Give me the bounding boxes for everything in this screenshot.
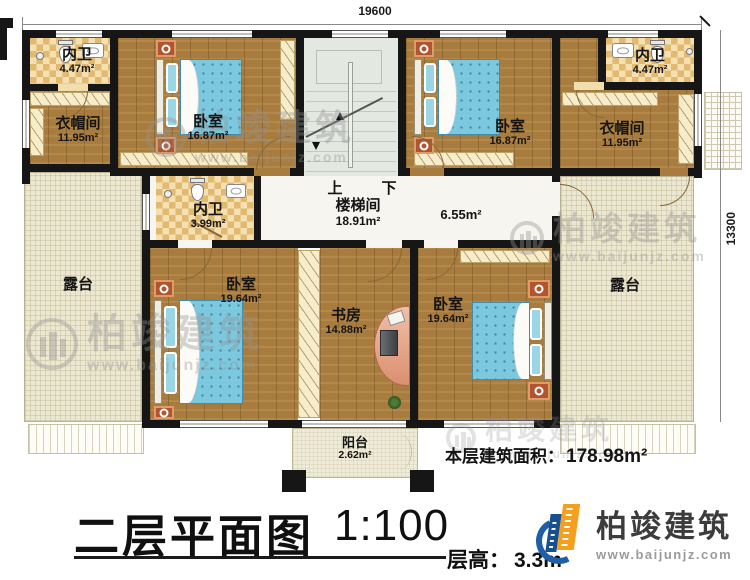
- room-label-bedroom-top-left: 卧室 16.87m²: [176, 113, 240, 143]
- window-left: [22, 100, 30, 148]
- room-area: 16.87m²: [188, 130, 229, 142]
- stair-down-label: 下: [380, 177, 398, 198]
- room-area: 11.95m²: [58, 132, 98, 144]
- nightstand-knob-icon: [160, 284, 169, 293]
- room-name: 阳台: [342, 436, 368, 450]
- bed-blanket: [180, 301, 200, 403]
- wall-closet-tl-bottom: [22, 164, 118, 172]
- room-area: 19.64m²: [221, 293, 262, 305]
- wall-bath-tr-bottom: [598, 82, 702, 90]
- room-label-closet-top-left: 衣帽间 11.95m²: [46, 115, 110, 145]
- toilet-tank-icon: [190, 178, 205, 183]
- brand-url: www.baijunjz.com: [596, 547, 732, 562]
- stair-up-label: 上: [326, 177, 344, 198]
- room-name: 内卫: [193, 202, 223, 219]
- window-top-1: [56, 30, 102, 38]
- room-name: 衣帽间: [599, 121, 644, 138]
- room-label-bedroom-bottom-left: 卧室 19.64m²: [209, 276, 273, 306]
- window-top-stair: [332, 30, 388, 38]
- room-area: 11.95m²: [602, 137, 642, 149]
- bed-mattress: [179, 300, 243, 404]
- title-underline: [74, 556, 446, 559]
- shower-icon: [36, 52, 44, 60]
- nightstand: [528, 382, 550, 400]
- room-area: 2.62m²: [338, 450, 371, 462]
- wardrobe-closet-tr-right: [678, 94, 694, 164]
- bed-mattress: [472, 302, 530, 380]
- room-area: 4.47m²: [60, 63, 95, 75]
- brand-logo-windows-icon: [549, 518, 557, 548]
- wall-stair-right: [398, 30, 406, 176]
- shower-icon: [686, 48, 693, 55]
- room-label-terrace-right: 露台: [597, 277, 653, 295]
- room-name: 卧室: [193, 114, 223, 131]
- sink-basin-icon: [231, 188, 242, 195]
- floor-area-label: 本层建筑面积：: [445, 442, 564, 467]
- stair-arrow-down: [312, 142, 320, 150]
- room-area: 19.64m²: [428, 313, 469, 325]
- bed-pillow: [164, 306, 177, 348]
- room-name: 露台: [610, 278, 640, 295]
- dimension-top-value: 19600: [337, 4, 413, 18]
- wardrobe-closet-tl-left: [30, 108, 44, 156]
- room-label-bath-middle: 内卫 3.99m²: [176, 202, 240, 230]
- wall-bedroom-tr-right: [552, 30, 560, 176]
- nightstand: [156, 137, 176, 154]
- wall-stair-left: [296, 30, 304, 176]
- bed-headboard: [154, 300, 162, 404]
- wall-bath-mid-right: [254, 176, 261, 240]
- balcony-sliding-door: [302, 420, 406, 428]
- bed-headboard: [544, 302, 552, 380]
- door-gap-study: [366, 240, 402, 248]
- door-gap-bath-tl: [58, 84, 88, 91]
- brand-name: 柏竣建筑: [596, 511, 732, 542]
- bed-blanket: [439, 60, 457, 134]
- room-label-study: 书房 14.88m²: [314, 307, 378, 337]
- nightstand-knob-icon: [162, 141, 171, 150]
- nightstand: [154, 406, 174, 419]
- room-label-hall-area: 6.55m²: [430, 206, 492, 224]
- room-label-bedroom-bottom-right: 卧室 19.64m²: [416, 296, 480, 326]
- terrace-left-floor: [24, 172, 142, 422]
- room-name: 卧室: [433, 297, 463, 314]
- room-name: 衣帽间: [55, 116, 100, 133]
- nightstand-knob-icon: [160, 408, 169, 417]
- bed-pillow: [164, 352, 177, 394]
- room-area: 6.55m²: [440, 208, 481, 222]
- exterior-grid-platform: [704, 92, 742, 170]
- plan-scale: 1:100: [334, 501, 449, 551]
- room-label-bath-top-right: 内卫 4.47m²: [618, 48, 682, 76]
- bed-blanket: [513, 303, 529, 379]
- room-name: 楼梯间: [335, 198, 380, 215]
- floor-plan-canvas: 19600 13300: [0, 0, 750, 580]
- window-bottom-left: [180, 420, 268, 428]
- plant-icon: [388, 396, 401, 409]
- room-label-bath-top-left: 内卫 4.47m²: [45, 46, 109, 76]
- wardrobe-bedroom-br: [460, 250, 550, 263]
- floor-height-label: 层高：: [447, 544, 510, 574]
- room-area: 14.88m²: [326, 324, 367, 336]
- room-area: 16.87m²: [490, 135, 531, 147]
- room-name: 露台: [63, 277, 93, 294]
- dimension-top-line: [22, 24, 702, 25]
- room-name: 书房: [331, 308, 361, 325]
- dimension-right-line: [720, 30, 721, 422]
- room-name: 卧室: [226, 277, 256, 294]
- room-label-stairhall: 楼梯间 18.91m²: [318, 198, 398, 228]
- room-label-bedroom-top-right: 卧室 16.87m²: [478, 118, 542, 148]
- wardrobe-bedroom-tl: [120, 152, 248, 166]
- wall-bath-tr-left: [598, 30, 606, 86]
- door-gap-bath-tr: [574, 82, 604, 90]
- nightstand-knob-icon: [420, 44, 429, 53]
- toilet-tank-icon: [58, 40, 73, 45]
- room-label-terrace-left: 露台: [50, 276, 106, 294]
- wall-study-right: [410, 248, 418, 420]
- door-gap-closet-tr-terrace: [660, 168, 688, 176]
- window-top-4: [608, 30, 658, 38]
- door-gap-bedroom-tr: [410, 168, 444, 176]
- nightstand-knob-icon: [162, 44, 171, 53]
- shower-icon: [164, 190, 172, 198]
- dimension-top-tick-left: [22, 17, 23, 30]
- balcony-arc-decor: [386, 434, 412, 470]
- room-label-closet-top-right: 衣帽间 11.95m²: [590, 120, 654, 150]
- toilet-tank-icon: [650, 40, 665, 45]
- bed-headboard: [414, 59, 422, 135]
- room-label-balcony: 阳台 2.62m²: [321, 436, 389, 462]
- room-name: 内卫: [635, 48, 665, 65]
- window-top-3: [440, 30, 506, 38]
- eave-strip-left: [28, 424, 144, 454]
- door-gap-bedroom-br: [424, 240, 458, 248]
- monitor-icon: [380, 330, 398, 356]
- floor-area-value: 178.98m²: [566, 446, 647, 468]
- bed-pillow: [530, 308, 542, 340]
- window-top-2: [172, 30, 252, 38]
- nightstand: [154, 280, 174, 297]
- door-gap-terrace-right: [552, 182, 560, 216]
- nightstand-knob-icon: [535, 285, 544, 294]
- sink-icon: [226, 184, 246, 198]
- room-name: 内卫: [62, 47, 92, 64]
- bed-headboard: [156, 59, 164, 135]
- brand-logo-icon: [536, 502, 590, 566]
- nightstand: [414, 40, 434, 57]
- room-area: 3.99m²: [191, 218, 226, 230]
- window-hall-left: [142, 194, 150, 230]
- nightstand-knob-icon: [535, 387, 544, 396]
- wardrobe-bedroom-tl-side: [280, 40, 295, 120]
- balcony-column-left: [282, 470, 306, 492]
- room-name: 卧室: [495, 119, 525, 136]
- bed-pillow: [166, 63, 178, 93]
- corner-stub-top-left-b: [0, 18, 7, 60]
- room-area: 4.47m²: [633, 64, 668, 76]
- door-gap-bedroom-bl: [178, 240, 212, 248]
- bed-pillow: [424, 97, 436, 127]
- room-area: 18.91m²: [336, 215, 381, 228]
- brand-text-block: 柏竣建筑 www.baijunjz.com: [596, 511, 732, 562]
- nightstand: [156, 40, 176, 57]
- dimension-right-value: 13300: [724, 212, 738, 245]
- nightstand: [528, 280, 550, 298]
- window-right: [694, 94, 702, 146]
- brand-logo-windows-icon: [561, 508, 572, 546]
- bed-pillow: [424, 63, 436, 93]
- wall-closet-tl-divider: [110, 30, 118, 172]
- floor-area-annotation: 本层建筑面积： 178.98m²: [445, 442, 647, 468]
- window-bottom-right: [444, 420, 534, 428]
- balcony-column-right: [410, 470, 434, 492]
- stair-arrow-up: [336, 112, 344, 120]
- bed-pillow: [530, 344, 542, 376]
